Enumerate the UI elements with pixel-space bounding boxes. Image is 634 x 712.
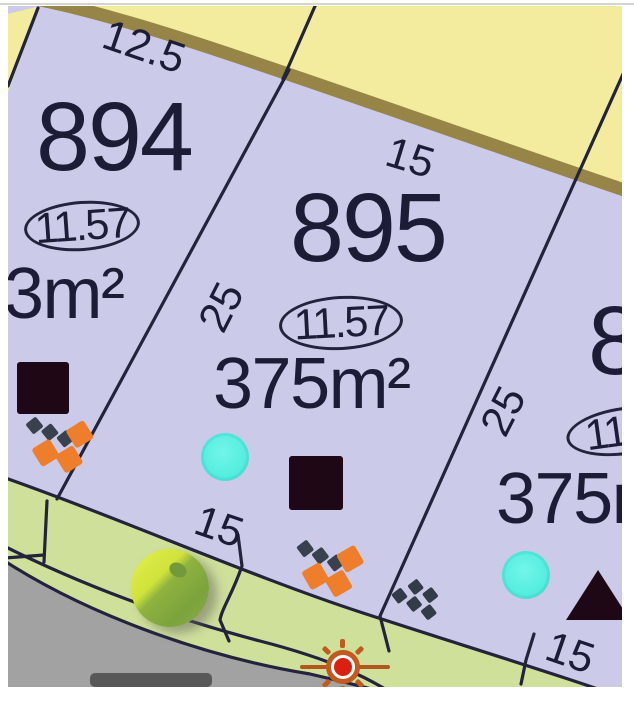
wall-brick-icon (31, 438, 60, 467)
wall-brick-icon (324, 569, 353, 598)
sun-ray (322, 646, 332, 656)
retaining-wall-icon (290, 537, 373, 603)
tree-icon (131, 549, 209, 627)
lot-894-number: 894 (36, 88, 192, 185)
lot-right-area: 375m (496, 463, 634, 535)
cyan-dot-icon (502, 551, 550, 599)
wall-brick-icon (65, 420, 94, 449)
sun-core (334, 658, 352, 676)
lot-895-frontage-value: 11.57 (293, 299, 390, 347)
page-margin-bottom (0, 687, 634, 712)
wall-brick-icon (336, 545, 365, 574)
lot-895-area: 375m² (213, 348, 410, 420)
wall-brick-icon (55, 445, 84, 474)
step-block-icon (422, 587, 439, 604)
lot-894-area: 3m² (4, 258, 124, 330)
lot-894-frontage-oval: 11.57 (22, 197, 141, 255)
top-hairline (0, 3, 634, 5)
lot-895-number: 895 (290, 179, 446, 276)
page-margin-left (0, 0, 8, 712)
cyan-dot-icon (201, 433, 249, 481)
dark-square-icon (289, 456, 343, 510)
step-block-icon (420, 604, 437, 621)
wall-brick-icon (301, 562, 330, 591)
lot-894-frontage-value: 11.57 (33, 201, 130, 250)
dark-triangle-icon (566, 570, 630, 620)
sun-ray (355, 646, 365, 656)
sun-ray (340, 639, 345, 648)
dark-square-icon (17, 362, 69, 414)
kerb-bar (90, 673, 212, 687)
subdivision-lot-map: 894 11.57 3m² 895 11.57 375m² 8 11. 375m… (0, 0, 634, 712)
page-margin-right (622, 0, 634, 712)
retaining-wall-icon (21, 414, 102, 478)
